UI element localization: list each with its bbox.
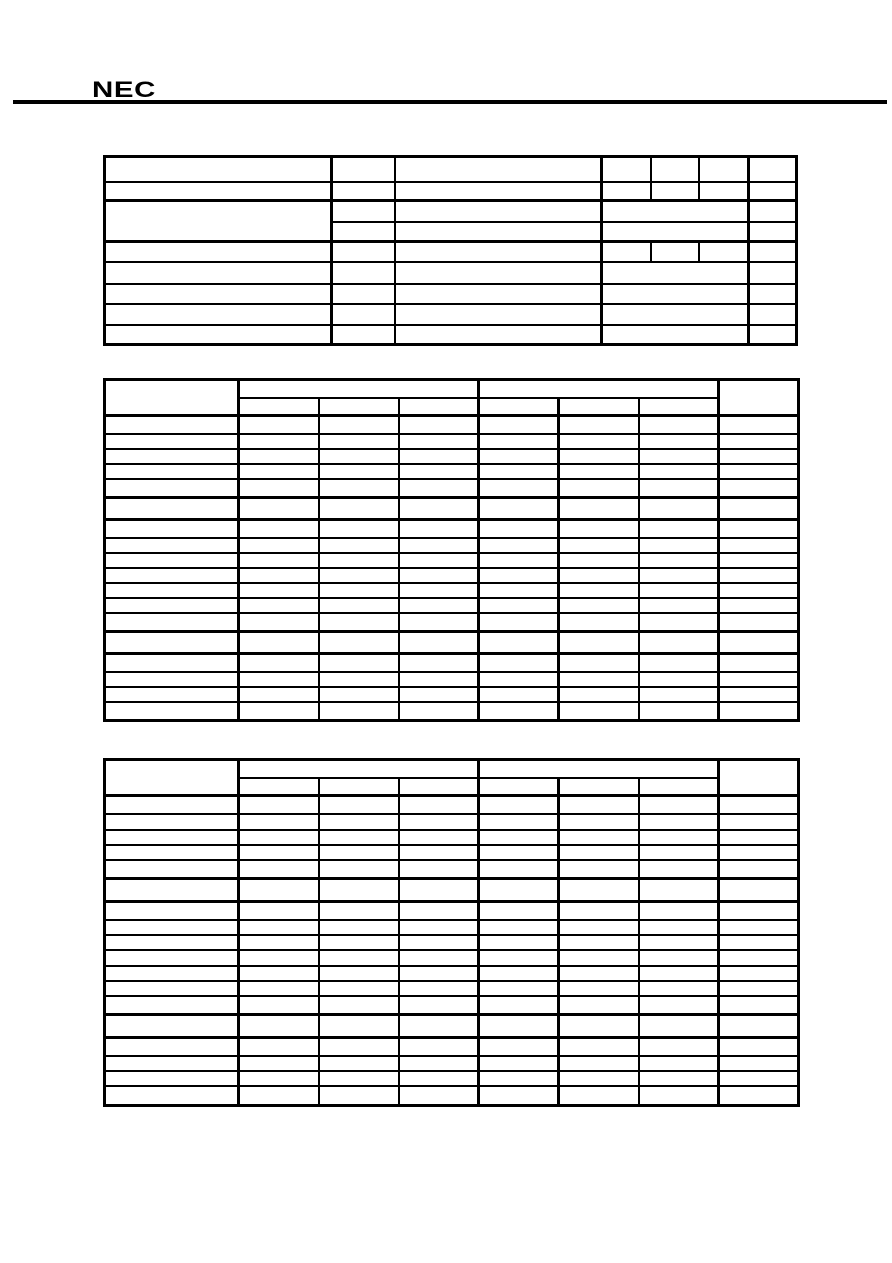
table-row bbox=[105, 157, 797, 182]
table-row bbox=[105, 1056, 799, 1071]
table-row bbox=[105, 845, 799, 860]
table-3-body bbox=[105, 796, 799, 1106]
header-cell-stub bbox=[105, 760, 239, 796]
table-row bbox=[105, 1015, 799, 1038]
table-row bbox=[105, 325, 797, 345]
table-row bbox=[105, 434, 799, 449]
table-row bbox=[105, 479, 799, 498]
table-row bbox=[105, 538, 799, 553]
table-row bbox=[105, 304, 797, 325]
table-row bbox=[105, 520, 799, 539]
table-1 bbox=[103, 155, 798, 346]
table-row bbox=[105, 497, 799, 519]
table-row bbox=[105, 901, 799, 920]
table-row bbox=[105, 687, 799, 702]
table-row bbox=[105, 201, 797, 222]
table-row bbox=[105, 464, 799, 479]
table-row bbox=[105, 182, 797, 201]
table-row bbox=[105, 966, 799, 981]
table-row bbox=[105, 583, 799, 598]
table-row bbox=[105, 860, 799, 879]
header-rule bbox=[13, 100, 887, 104]
table-row bbox=[105, 1037, 799, 1056]
table-2 bbox=[103, 378, 800, 722]
table-row bbox=[105, 996, 799, 1015]
header-group-2 bbox=[479, 380, 719, 398]
table-row bbox=[105, 830, 799, 845]
table-row bbox=[105, 598, 799, 613]
table-row bbox=[105, 631, 799, 653]
table-row bbox=[105, 879, 799, 902]
header-cell-last bbox=[719, 760, 799, 796]
table-2-body bbox=[105, 416, 799, 721]
table-row bbox=[105, 672, 799, 687]
table-row bbox=[105, 242, 797, 262]
table-row bbox=[105, 449, 799, 464]
document-page: { "page": { "width": 892, "height": 1263… bbox=[0, 0, 892, 1263]
table-row bbox=[105, 920, 799, 935]
table-row bbox=[105, 262, 797, 284]
table-row bbox=[105, 284, 797, 304]
table-row bbox=[105, 1071, 799, 1086]
table-row bbox=[105, 416, 799, 435]
table-header-row bbox=[105, 380, 799, 398]
header-cell-last bbox=[719, 380, 799, 416]
table-row bbox=[105, 1086, 799, 1105]
table-row bbox=[105, 702, 799, 721]
table-row bbox=[105, 796, 799, 815]
table-row bbox=[105, 935, 799, 950]
table-row bbox=[105, 654, 799, 673]
table-row bbox=[105, 568, 799, 583]
table-row bbox=[105, 950, 799, 965]
table-row bbox=[105, 553, 799, 568]
table-header-row bbox=[105, 760, 799, 778]
header-cell-stub bbox=[105, 380, 239, 416]
header-group-1 bbox=[239, 760, 479, 778]
table-row bbox=[105, 981, 799, 996]
table-3 bbox=[103, 758, 800, 1107]
header-group-2 bbox=[479, 760, 719, 778]
table-row bbox=[105, 613, 799, 632]
table-row bbox=[105, 814, 799, 829]
header-group-1 bbox=[239, 380, 479, 398]
nec-logo: NEC bbox=[92, 80, 156, 100]
